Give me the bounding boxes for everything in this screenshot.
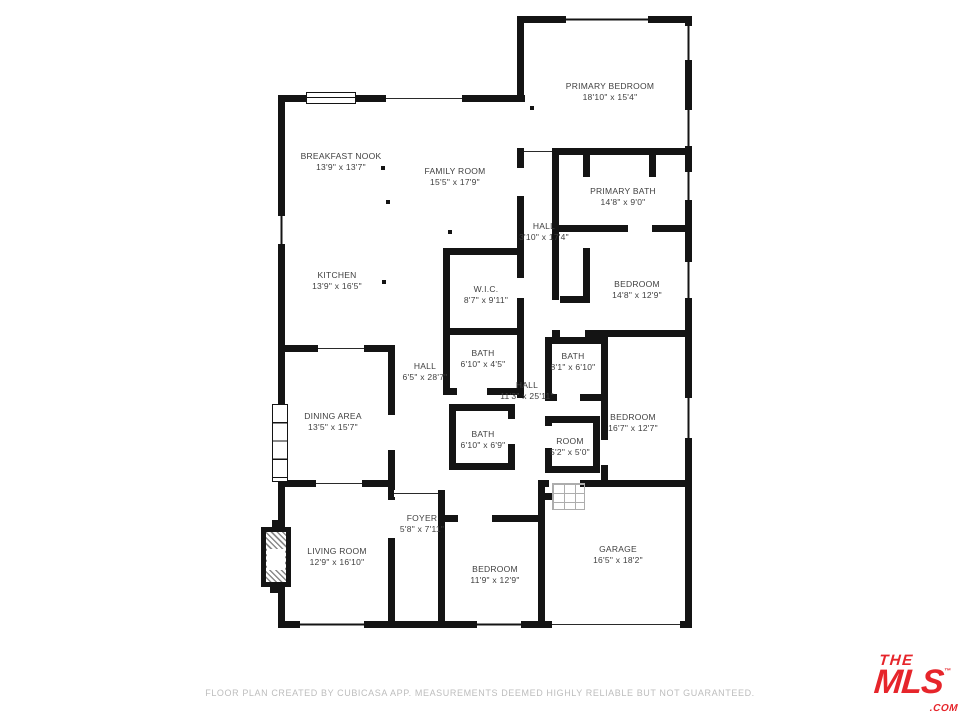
fireplace-tab [272, 520, 282, 528]
room-label-living-room: LIVING ROOM 12'9" x 16'10" [307, 546, 366, 568]
themls-logo: THE MLS™ .COM [871, 654, 960, 716]
window [685, 172, 692, 200]
wall [508, 404, 515, 419]
window [477, 621, 521, 628]
room-name: BATH [461, 429, 506, 440]
room-dims: 8'1" x 6'10" [551, 362, 596, 373]
door-opening [386, 95, 462, 102]
room-label-bedroom-se: BEDROOM 16'7" x 12'7" [608, 412, 658, 434]
wall [545, 416, 600, 423]
door-opening [524, 148, 552, 155]
window [278, 216, 285, 244]
room-name: W.I.C. [464, 284, 508, 295]
window [272, 404, 288, 482]
room-dims: 8'7" x 9'11" [464, 295, 508, 306]
room-label-room: ROOM 5'2" x 5'0" [550, 436, 590, 458]
wall [388, 345, 395, 415]
wall [552, 330, 560, 337]
wall [508, 444, 515, 470]
room-label-bedroom-south: BEDROOM 11'9" x 12'9" [470, 564, 519, 586]
wall [560, 296, 590, 303]
room-name: DINING AREA [304, 411, 362, 422]
wall [449, 404, 456, 470]
wall [685, 16, 692, 628]
door-opening [394, 490, 438, 497]
wall-post [382, 280, 386, 284]
room-name: BEDROOM [612, 279, 662, 290]
room-dims: 13'5" x 15'7" [304, 422, 362, 433]
room-dims: 6'5" x 28'7" [403, 372, 448, 383]
wall [449, 463, 515, 470]
window [566, 16, 648, 23]
wall [364, 345, 390, 352]
wall [593, 416, 600, 473]
wall [545, 466, 600, 473]
window [300, 621, 364, 628]
disclaimer-text: FLOOR PLAN CREATED BY CUBICASA APP. MEAS… [0, 688, 960, 698]
room-dims: 11'9" x 12'9" [470, 575, 519, 586]
wall [517, 148, 524, 168]
wall [580, 394, 608, 401]
floor-plan: BREAKFAST NOOK 13'9" x 13'7" FAMILY ROOM… [0, 0, 960, 720]
room-name: BEDROOM [470, 564, 519, 575]
window [306, 92, 356, 104]
room-name: ROOM [550, 436, 590, 447]
wall [517, 16, 524, 102]
wall [583, 248, 590, 303]
room-name: BEDROOM [608, 412, 658, 423]
wall [492, 515, 538, 522]
room-name: HALL [500, 380, 554, 391]
wall [438, 490, 445, 621]
wall [538, 480, 549, 487]
wall [517, 248, 524, 278]
room-label-bath-center: BATH 6'10" x 6'9" [461, 429, 506, 451]
wall [583, 155, 590, 177]
room-label-hall-west: HALL 6'5" x 28'7" [403, 361, 448, 383]
wall-post [530, 106, 534, 110]
wall-post [545, 493, 552, 500]
wall [388, 538, 395, 621]
window [685, 398, 692, 438]
entry-steps-icon [552, 483, 585, 510]
room-label-bath-small: BATH 6'10" x 4'5" [461, 348, 506, 370]
room-dims: 3'10" x 17'4" [519, 232, 569, 243]
room-dims: 16'7" x 12'7" [608, 423, 658, 434]
wall-post [386, 200, 390, 204]
logo-mls: MLS [873, 663, 945, 701]
room-label-foyer: FOYER 5'8" x 7'11" [400, 513, 444, 535]
wall [585, 330, 688, 337]
room-name: KITCHEN [312, 270, 362, 281]
door-opening [316, 480, 362, 487]
fireplace-firebox [267, 549, 285, 570]
room-dims: 16'5" x 18'2" [593, 555, 643, 566]
room-label-hall-center: HALL 11'3" x 25'11" [500, 380, 554, 402]
room-name: BREAKFAST NOOK [301, 151, 382, 162]
wall-post [448, 230, 452, 234]
room-name: FOYER [400, 513, 444, 524]
room-dims: 14'8" x 9'0" [590, 197, 656, 208]
wall [649, 155, 656, 177]
room-name: BATH [551, 351, 596, 362]
room-dims: 12'9" x 16'10" [307, 557, 366, 568]
room-name: LIVING ROOM [307, 546, 366, 557]
room-name: HALL [519, 221, 569, 232]
wall [545, 337, 608, 344]
room-dims: 14'8" x 12'9" [612, 290, 662, 301]
wall [601, 337, 608, 440]
room-label-primary-bath: PRIMARY BATH 14'8" x 9'0" [590, 186, 656, 208]
wall [362, 480, 390, 487]
room-label-garage: GARAGE 16'5" x 18'2" [593, 544, 643, 566]
room-name: FAMILY ROOM [424, 166, 485, 177]
wall [652, 225, 688, 232]
room-dims: 13'9" x 13'7" [301, 162, 382, 173]
room-label-family-room: FAMILY ROOM 15'5" x 17'9" [424, 166, 485, 188]
room-name: HALL [403, 361, 448, 372]
room-label-bedroom-ne: BEDROOM 14'8" x 12'9" [612, 279, 662, 301]
wall [545, 416, 552, 426]
wall [601, 465, 608, 480]
window [685, 110, 692, 146]
room-label-breakfast-nook: BREAKFAST NOOK 13'9" x 13'7" [301, 151, 382, 173]
wall [278, 345, 318, 352]
room-name: BATH [461, 348, 506, 359]
room-label-kitchen: KITCHEN 13'9" x 16'5" [312, 270, 362, 292]
wall [443, 388, 457, 395]
room-name: PRIMARY BEDROOM [566, 81, 654, 92]
room-name: PRIMARY BATH [590, 186, 656, 197]
room-label-hall-upper: HALL 3'10" x 17'4" [519, 221, 569, 243]
room-dims: 18'10" x 15'4" [566, 92, 654, 103]
room-dims: 13'9" x 16'5" [312, 281, 362, 292]
room-dims: 5'8" x 7'11" [400, 524, 444, 535]
room-dims: 6'10" x 6'9" [461, 440, 506, 451]
window [685, 26, 692, 60]
wall [580, 480, 688, 487]
wall [552, 148, 688, 155]
room-name: GARAGE [593, 544, 643, 555]
room-label-bath-east: BATH 8'1" x 6'10" [551, 351, 596, 373]
wall-post [381, 166, 385, 170]
logo-com: .COM [929, 703, 958, 714]
door-opening [318, 345, 364, 352]
wall [449, 404, 515, 411]
room-label-primary-bedroom: PRIMARY BEDROOM 18'10" x 15'4" [566, 81, 654, 103]
wall [443, 248, 524, 255]
room-dims: 5'2" x 5'0" [550, 447, 590, 458]
logo-trademark: ™ [944, 668, 952, 675]
room-dims: 15'5" x 17'9" [424, 177, 485, 188]
room-label-dining-area: DINING AREA 13'5" x 15'7" [304, 411, 362, 433]
window [685, 262, 692, 298]
fireplace-tab [270, 586, 282, 593]
room-label-wic: W.I.C. 8'7" x 9'11" [464, 284, 508, 306]
wall [443, 328, 524, 335]
room-dims: 11'3" x 25'11" [500, 391, 554, 402]
room-dims: 6'10" x 4'5" [461, 359, 506, 370]
wall [538, 480, 545, 628]
garage-door-opening [552, 621, 680, 628]
